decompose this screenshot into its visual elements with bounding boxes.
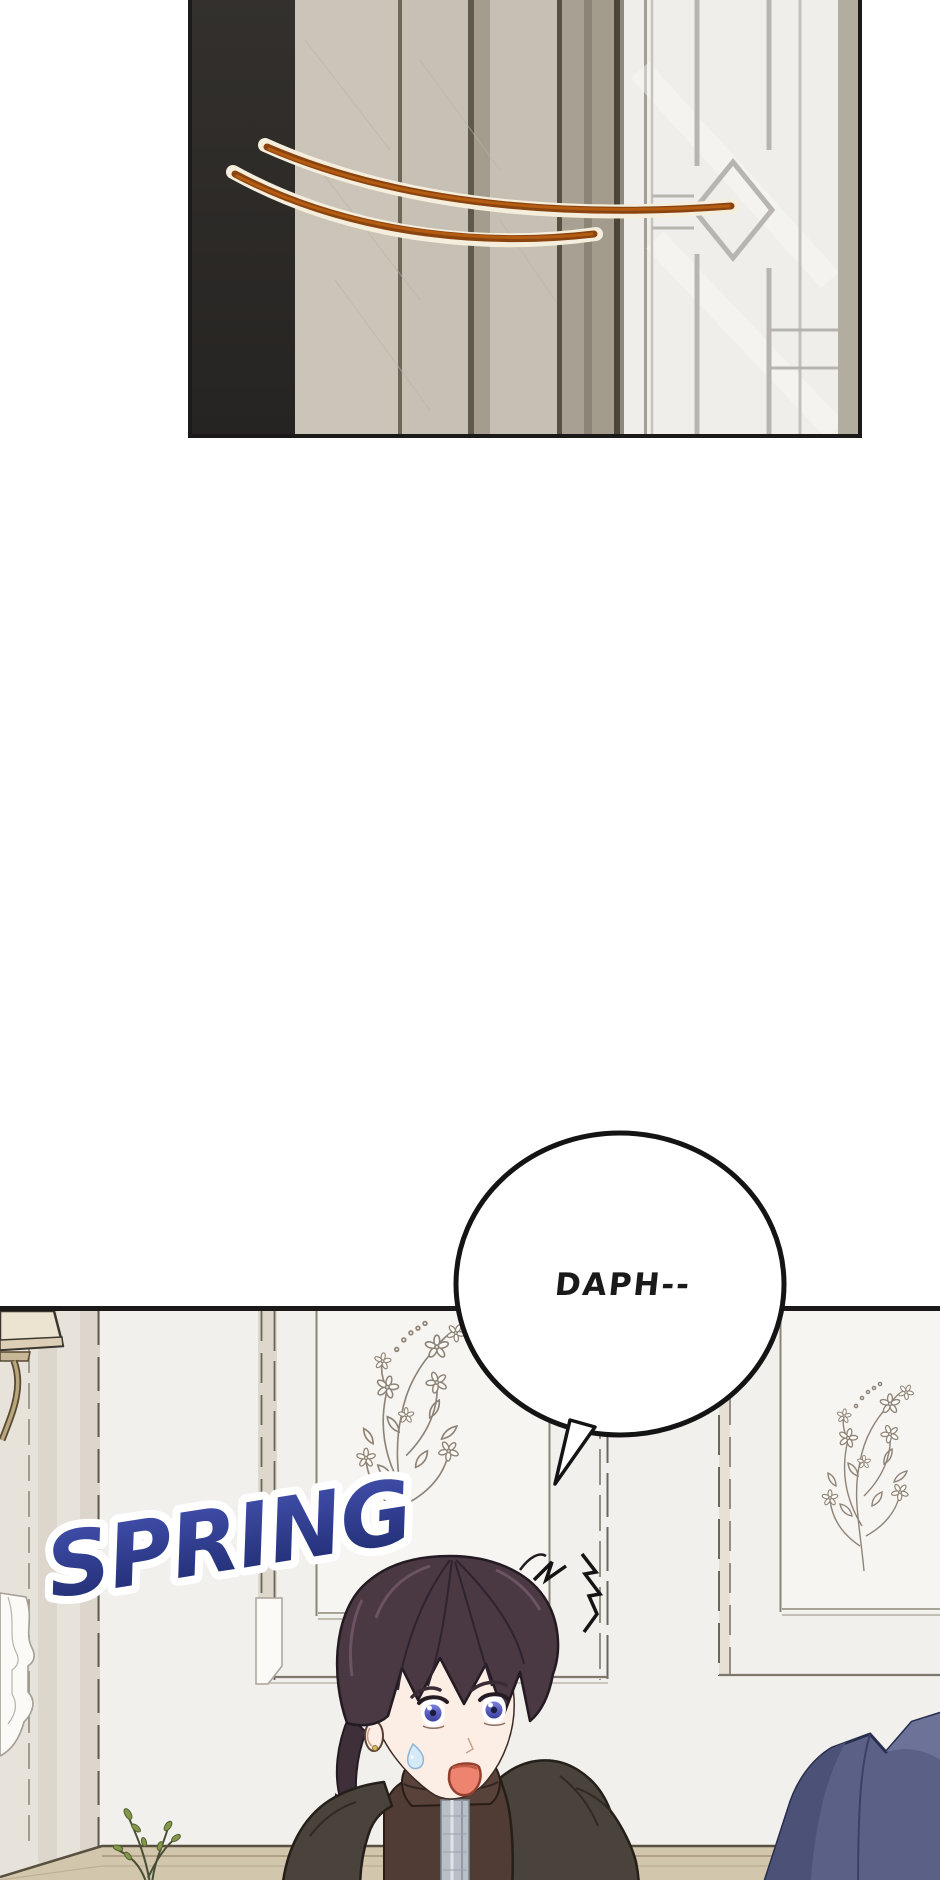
character-zipper xyxy=(441,1800,469,1880)
pilaster-base-molding xyxy=(256,1598,282,1684)
speech-bubble-text: DAPH-- xyxy=(553,1267,693,1303)
room-scene: SPRING xyxy=(0,1306,940,1880)
top-panel xyxy=(188,0,862,438)
character-earring xyxy=(373,1746,378,1751)
comic-artwork: SPRING xyxy=(0,0,940,1880)
character-mouth xyxy=(449,1763,481,1795)
comic-page: SPRING xyxy=(0,0,940,1880)
